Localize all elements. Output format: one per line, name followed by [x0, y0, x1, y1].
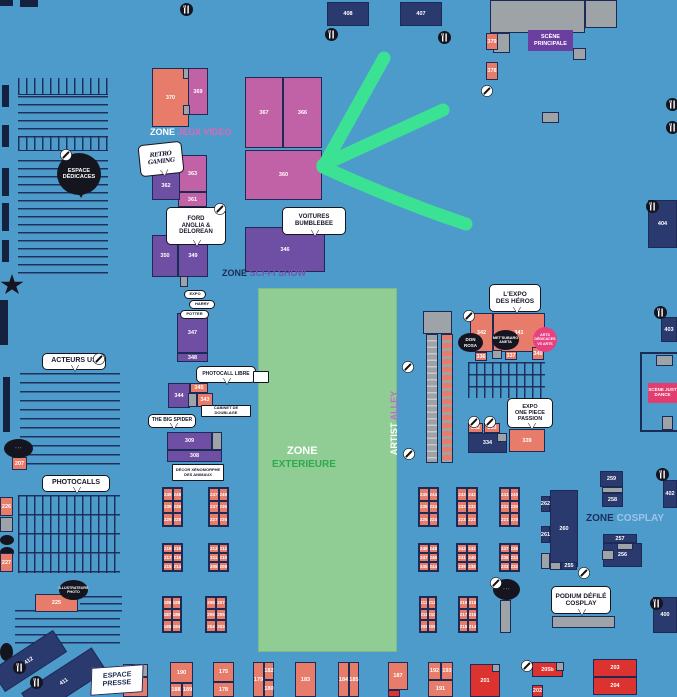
- booth-number: 361: [188, 197, 197, 203]
- booth-379: 379: [486, 33, 498, 50]
- booth-348: 348: [177, 353, 208, 362]
- booth-207: 207: [12, 457, 27, 470]
- booth-number: 204: [610, 683, 619, 689]
- bubble-don: DON ROSA: [458, 333, 483, 352]
- booth-number: 367: [259, 110, 268, 116]
- booth-number: 402: [665, 491, 674, 497]
- booth-cell: 219: [163, 544, 173, 553]
- structure-block: [492, 350, 502, 359]
- booth-cell: 217: [459, 609, 468, 621]
- booth-cell: 225: [419, 513, 429, 526]
- restaurant-icon: [666, 121, 677, 134]
- structure-block: [656, 355, 673, 366]
- booth-cell: 248: [429, 544, 439, 553]
- booth-number: 202: [533, 688, 542, 694]
- booth-366: 366: [283, 77, 322, 148]
- row-label-mark: [2, 240, 9, 262]
- booth-grid: 247246237236227226: [208, 487, 229, 527]
- booth-202: 202: [532, 685, 543, 697]
- restaurant-icon: [325, 28, 338, 41]
- booth-cell: 214: [468, 620, 477, 632]
- booth-number: 370: [166, 95, 175, 101]
- restaurant-icon: [656, 468, 669, 481]
- zone-label: ZONE COSPLAY: [586, 513, 664, 524]
- row-label-mark: [3, 377, 10, 432]
- zone-label: ZONE JEUX VIDEO: [150, 127, 232, 137]
- booth-number: 400: [660, 612, 669, 618]
- booth-number: 345: [194, 385, 203, 391]
- booth-cell: 209: [209, 562, 219, 571]
- booth-347: 347: [177, 313, 208, 353]
- booth-grid: 213212211210209208: [419, 596, 437, 633]
- booth-cell: 222: [467, 513, 477, 526]
- booth-cell: 239: [457, 562, 467, 571]
- booth-number: 343: [200, 397, 209, 403]
- zone-label-text: COSPLAY: [617, 513, 664, 524]
- label-espace-presse: ESPACE PRESSE: [90, 664, 143, 696]
- booth-345: 345: [190, 383, 208, 393]
- pen-icon: [521, 659, 533, 671]
- structure-block: [556, 662, 564, 671]
- booth-260: 260: [550, 490, 578, 567]
- zone-label-text: ALLEY: [389, 391, 399, 421]
- bubble-illustrateurs: ILLUSTRATEURS PHOTO: [59, 580, 88, 600]
- booth-175: 175: [213, 662, 234, 682]
- booth-cell: 189: [163, 597, 172, 609]
- artist-alley-strip-seats: [426, 334, 438, 463]
- convention-floor-map: 4084074044034024003793783703693673663603…: [0, 0, 677, 697]
- booth-grid: 208207206205204203: [205, 596, 227, 633]
- booth-number: 336: [476, 354, 485, 360]
- wall-line: [640, 352, 677, 354]
- booth-cell: 237: [500, 544, 510, 553]
- booth-number: 185: [349, 677, 358, 683]
- booth-number: 366: [298, 110, 307, 116]
- booth-344: 344: [168, 383, 190, 408]
- booth-grid: 241240231230221220: [499, 487, 520, 527]
- booth-cell: 240: [510, 488, 520, 501]
- booth-cell: 219: [459, 597, 468, 609]
- booth-grid: 237236235234233232: [499, 543, 520, 572]
- booth-378: 378: [486, 62, 498, 80]
- queue-lines: [20, 373, 120, 468]
- booth-259: 259: [600, 471, 623, 487]
- bubble-podium-d-fil-: PODIUM DÉFILÉ COSPLAY: [551, 586, 611, 614]
- booth-number: 183: [301, 677, 310, 683]
- booth-grid: 213212211210209208: [208, 543, 229, 572]
- structure-block: [497, 433, 507, 442]
- booth-cell: 249: [419, 544, 429, 553]
- booth-257: 257: [603, 534, 637, 543]
- booth-cell: 237: [209, 501, 219, 514]
- booth-cell: 223: [457, 513, 467, 526]
- booth-grid: 189188187186185184: [162, 596, 182, 633]
- booth-grid: 243242233232223222: [456, 487, 478, 527]
- structure-block: [541, 553, 550, 569]
- booth-number: 308: [190, 453, 199, 459]
- booth-grid: 249248247246245244: [418, 543, 439, 572]
- pen-icon: [403, 447, 415, 459]
- zone-label: EXTERIEURE: [272, 459, 336, 470]
- structure-block: [542, 112, 559, 123]
- booth-cell: 233: [500, 562, 510, 571]
- booth-190: 190: [170, 662, 193, 683]
- queue-lines: [18, 96, 108, 140]
- booth-182: 182: [264, 662, 274, 680]
- bubble-expo: EXPO ONE PIECE PASSION: [507, 398, 553, 428]
- booth-cell: 238: [173, 501, 183, 514]
- booth-cell: 220: [510, 513, 520, 526]
- pen-icon: [93, 352, 105, 364]
- booth-number: 203: [610, 665, 619, 671]
- booth-cell: 186: [172, 609, 181, 621]
- booth-cell: 203: [216, 620, 226, 632]
- zone-label-text: ZONE: [150, 127, 178, 137]
- booth-cell: 243: [457, 544, 467, 553]
- booth-number: 179: [254, 677, 263, 683]
- row-label-mark: [0, 0, 13, 6]
- booth-255: 255: [561, 562, 577, 570]
- bubble-expo: EXPO: [184, 290, 206, 299]
- pen-icon: [468, 415, 480, 427]
- booth-number: 188: [171, 687, 180, 693]
- booth-187: 187: [388, 662, 408, 690]
- booth-number: 226: [2, 504, 11, 510]
- booth-cell: 213: [209, 544, 219, 553]
- booth-258: 258: [602, 493, 623, 507]
- row-label-mark: [2, 168, 9, 196]
- booth-cell: 205: [216, 609, 226, 621]
- booth-183: 183: [295, 662, 316, 697]
- restaurant-icon: [438, 31, 451, 44]
- booth-number: 256: [618, 552, 627, 558]
- booth-number: 379: [487, 39, 496, 45]
- booth-cell: 212: [428, 597, 436, 609]
- restaurant-icon: [180, 3, 193, 16]
- structure-block: [550, 562, 561, 570]
- bubble-potter: POTTER: [180, 310, 209, 319]
- booth-cell: 244: [429, 562, 439, 571]
- booth-179: 179: [253, 662, 264, 697]
- booth-cell: 241: [457, 553, 467, 562]
- booth-261: 261: [541, 526, 550, 543]
- booth-cell: 211: [209, 553, 219, 562]
- booth-cell: 229: [163, 513, 173, 526]
- structure-block: [0, 517, 13, 532]
- structure-block: [388, 690, 400, 697]
- booth-number: 182: [264, 668, 273, 674]
- label-sc-ne-just-dance: SCÈNE JUST DANCE: [648, 383, 677, 403]
- booth-184: 184: [338, 662, 349, 697]
- booth-cell: 213: [420, 597, 428, 609]
- row-label-mark: [2, 85, 9, 107]
- booth-336: 336: [475, 352, 487, 361]
- pen-icon: [578, 566, 590, 578]
- bubble-l-expo: L'EXPO DES HÉROS: [489, 284, 541, 312]
- booth-cell: 247: [419, 553, 429, 562]
- artist-alley-strip-tables: [441, 334, 453, 463]
- booth-cell: 208: [219, 562, 229, 571]
- bubble-harry: HARRY: [189, 300, 215, 309]
- structure-block: [500, 600, 511, 633]
- structure-block: [183, 68, 189, 79]
- booth-number: 350: [160, 253, 169, 259]
- booth-cell: 234: [510, 553, 520, 562]
- structure-block: [423, 311, 452, 334]
- booth-193: 193: [441, 662, 453, 680]
- booth-grid: 219218217216215214: [162, 543, 183, 572]
- booth-188: 188: [170, 683, 182, 697]
- booth-cell: 216: [173, 553, 183, 562]
- booth-309: 309: [167, 432, 212, 450]
- booth-grid: 243242241240239238: [456, 543, 478, 572]
- booth-cell: 242: [467, 544, 477, 553]
- booth-cell: 245: [419, 488, 429, 501]
- booth-cell: 208: [206, 597, 216, 609]
- booth-number: 180: [264, 686, 273, 692]
- booth-367: 367: [245, 77, 283, 148]
- zone-label-text: ARTIST: [389, 420, 399, 455]
- booth-cell: 226: [219, 513, 229, 526]
- booth-number: 184: [339, 677, 348, 683]
- booth-cell: 217: [163, 553, 173, 562]
- booth-grid: 249248239238229228: [162, 487, 183, 527]
- booth-number: 201: [480, 678, 489, 684]
- structure-block: [188, 393, 197, 407]
- booth-cell: 207: [216, 597, 226, 609]
- queue-lines: [468, 362, 545, 398]
- booth-cell: 235: [500, 553, 510, 562]
- booth-cell: 247: [209, 488, 219, 501]
- booth-number: 261: [541, 532, 550, 538]
- booth-number: 258: [608, 497, 617, 503]
- booth-cell: 184: [172, 620, 181, 632]
- booth-number: 349: [188, 253, 197, 259]
- booth-cell: 204: [206, 620, 216, 632]
- booth-cell: 248: [173, 488, 183, 501]
- booth-191: 191: [428, 680, 453, 697]
- bubble-arts: ARTS DÉDICACES VS ARTS: [533, 327, 557, 352]
- restaurant-icon: [13, 661, 26, 674]
- bubble-cabinet-de-doublage: CABINET DE DOUBLAGE: [201, 405, 251, 417]
- booth-number: 190: [177, 670, 186, 676]
- bubble-blank: [253, 371, 269, 383]
- booth-number: 378: [487, 68, 496, 74]
- structure-block: [492, 664, 500, 672]
- row-label-mark: [0, 300, 8, 345]
- booth-grid: 245244235234225224: [418, 487, 439, 527]
- booth-number: 225: [52, 600, 61, 606]
- restaurant-icon: [666, 98, 677, 111]
- booth-number: 407: [416, 11, 425, 17]
- restaurant-icon: [30, 676, 43, 689]
- row-label-mark: [2, 125, 9, 147]
- booth-number: 360: [279, 172, 288, 178]
- row-label-mark: [2, 203, 9, 231]
- booth-180: 180: [264, 680, 274, 697]
- row-label-mark: [20, 0, 38, 7]
- booth-cell: 241: [500, 488, 510, 501]
- structure-block: [183, 105, 190, 115]
- booth-cell: 210: [428, 609, 436, 621]
- booth-number: 205b: [541, 667, 554, 673]
- booth-number: 363: [188, 171, 197, 177]
- booth-cell: 212: [219, 544, 229, 553]
- booth-cell: 224: [429, 513, 439, 526]
- booth-308: 308: [167, 450, 222, 462]
- zone-label-text: EXTERIEURE: [272, 459, 336, 470]
- booth-402: 402: [663, 480, 677, 508]
- starburst-badge: [0, 274, 24, 296]
- zone-label-text: JEUX VIDEO: [178, 127, 232, 137]
- booth-number: 344: [174, 393, 183, 399]
- booth-cell: 208: [428, 620, 436, 632]
- booth-number: 334: [483, 440, 492, 446]
- booth-cell: 215: [163, 562, 173, 571]
- booth-cell: 232: [467, 501, 477, 514]
- bubble-the-big-spider: THE BIG SPIDER: [148, 414, 196, 428]
- pen-icon: [463, 309, 475, 321]
- booth-cell: 233: [457, 501, 467, 514]
- booth-408: 408: [327, 2, 369, 26]
- booth-number: 347: [188, 330, 197, 336]
- booth-cell: 242: [467, 488, 477, 501]
- queue-lines: [18, 495, 120, 573]
- booth-number: 403: [664, 327, 673, 333]
- bubble--: · · ·: [4, 439, 33, 458]
- structure-block: [212, 432, 222, 450]
- booth-grid: 219218217216215214: [458, 596, 478, 633]
- wall-line: [640, 430, 677, 432]
- booth-cell: 243: [457, 488, 467, 501]
- pen-icon: [484, 415, 496, 427]
- restaurant-icon: [654, 306, 667, 319]
- booth-cell: 214: [173, 562, 183, 571]
- label-sc-ne-principale: SCÈNE PRINCIPALE: [528, 30, 573, 51]
- queue-lines: [18, 78, 108, 95]
- booth-189: 189: [182, 683, 193, 697]
- booth-369: 369: [188, 68, 208, 115]
- booth-407: 407: [400, 2, 442, 26]
- booth-203: 203: [593, 659, 637, 677]
- pen-icon: [481, 84, 493, 96]
- booth-cell: 218: [468, 597, 477, 609]
- booth-number: 348: [188, 355, 197, 361]
- bubble-d-cor-x-nomorphe: DÉCOR XÉNOMORPHE DES ANIMAUX: [172, 464, 224, 481]
- booth-cell: 230: [510, 501, 520, 514]
- booth-number: 337: [506, 353, 515, 359]
- booth-204: 204: [593, 677, 637, 695]
- booth-360: 360: [245, 150, 322, 200]
- zone-label: ARTIST ALLEY: [389, 391, 399, 455]
- booth-178: 178: [213, 682, 234, 697]
- structure-block: [617, 543, 633, 550]
- structure-block: [602, 550, 614, 560]
- booth-number: 192: [430, 668, 439, 674]
- booth-262: 262: [541, 496, 550, 512]
- booth-192: 192: [428, 662, 441, 680]
- structure-block: [662, 416, 673, 430]
- booth-number: 255: [564, 563, 573, 569]
- booth-number: 369: [193, 89, 202, 95]
- booth-cell: 249: [163, 488, 173, 501]
- zone-label: ZONE SCI-FI SHOW: [222, 268, 306, 278]
- booth-185: 185: [349, 662, 359, 697]
- booth-361: 361: [178, 192, 207, 207]
- booth-number: 339: [522, 438, 531, 444]
- bubble-met-subaro: MET'SUBARO ANETA: [492, 330, 519, 350]
- booth-number: 227: [2, 560, 11, 566]
- booth-226: 226: [0, 497, 13, 516]
- booth-cell: 218: [173, 544, 183, 553]
- booth-number: 346: [280, 247, 289, 253]
- booth-cell: 245: [419, 562, 429, 571]
- booth-number: 189: [183, 687, 192, 693]
- booth-cell: 239: [163, 501, 173, 514]
- booth-cell: 187: [163, 609, 172, 621]
- booth-number: 175: [219, 669, 228, 675]
- wall-line: [640, 352, 642, 432]
- booth-cell: 228: [173, 513, 183, 526]
- booth-cell: 215: [459, 620, 468, 632]
- booth-number: 191: [436, 686, 445, 692]
- booth-cell: 246: [219, 488, 229, 501]
- booth-337: 337: [505, 351, 517, 360]
- booth-number: 309: [185, 438, 194, 444]
- small-black-badge: [0, 535, 14, 545]
- booth-403: 403: [661, 317, 677, 342]
- booth-cell: 227: [209, 513, 219, 526]
- zone-exterieure-area: [258, 288, 397, 652]
- booth-cell: 244: [429, 488, 439, 501]
- zone-label-text: ZONE: [287, 445, 318, 457]
- booth-cell: 185: [163, 620, 172, 632]
- booth-number: 207: [15, 461, 24, 467]
- booth-cell: 240: [467, 553, 477, 562]
- booth-number: 259: [607, 476, 616, 482]
- booth-number: 260: [559, 526, 568, 532]
- pen-icon: [60, 148, 72, 160]
- bubble-photocall-libre: PHOTOCALL LIBRE: [196, 366, 256, 383]
- booth-number: 262: [541, 501, 550, 507]
- booth-cell: 232: [510, 562, 520, 571]
- zone-label-text: ZONE: [586, 513, 617, 524]
- zone-label-text: ZONE: [222, 268, 250, 278]
- booth-227: 227: [0, 553, 13, 572]
- booth-cell: 234: [429, 501, 439, 514]
- booth-cell: 238: [467, 562, 477, 571]
- booth-number: 404: [658, 221, 667, 227]
- pen-icon: [490, 576, 502, 588]
- booth-number: 193: [442, 668, 451, 674]
- booth-cell: 188: [172, 597, 181, 609]
- booth-cell: 211: [420, 609, 428, 621]
- booth-cell: 235: [419, 501, 429, 514]
- booth-cell: 236: [510, 544, 520, 553]
- queue-lines: [80, 596, 122, 612]
- booth-cell: 209: [420, 620, 428, 632]
- zone-label-text: SCI-FI SHOW: [250, 268, 307, 278]
- booth-cell: 216: [468, 609, 477, 621]
- structure-block: [490, 0, 585, 33]
- queue-lines: [15, 610, 120, 645]
- structure-block: [573, 48, 586, 60]
- booth-cell: 236: [219, 501, 229, 514]
- booth-cell: 210: [219, 553, 229, 562]
- booth-number: 408: [343, 11, 352, 17]
- pen-icon: [402, 360, 414, 372]
- restaurant-icon: [646, 200, 659, 213]
